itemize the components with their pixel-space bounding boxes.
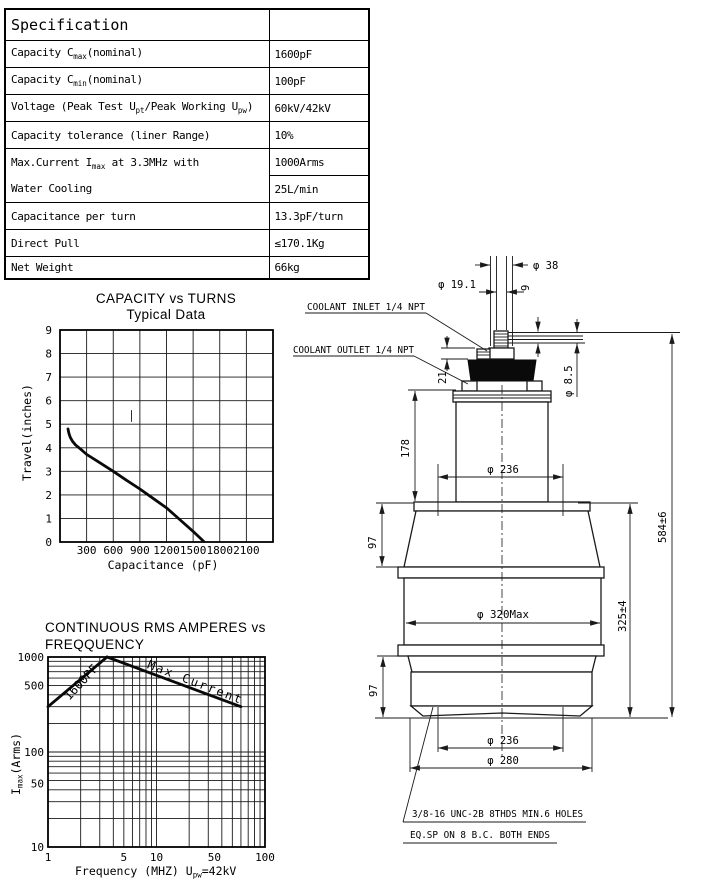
capacity-vs-turns-chart: 30060090012001500180021000123456789CAPAC… [20, 291, 273, 572]
svg-text:8: 8 [45, 348, 52, 361]
svg-text:900: 900 [130, 544, 150, 557]
svg-text:FREQQUENCY: FREQQUENCY [45, 637, 144, 652]
svg-text:Imax(Arms): Imax(Arms) [9, 733, 25, 795]
dim-178: 178 [400, 439, 412, 458]
svg-text:Capacitance (pF): Capacitance (pF) [108, 558, 219, 572]
graphics-layer: 30060090012001500180021000123456789CAPAC… [0, 0, 714, 885]
dim-dia38: φ 38 [533, 260, 558, 272]
svg-text:4: 4 [45, 442, 52, 455]
svg-text:1200: 1200 [153, 544, 180, 557]
dim-9: 9 [520, 285, 532, 291]
svg-text:9: 9 [45, 324, 52, 337]
dim-325: 325±4 [617, 600, 629, 632]
svg-text:Travel(inches): Travel(inches) [20, 384, 34, 481]
dim-dia236-bottom: φ 236 [487, 735, 519, 747]
svg-text:10: 10 [31, 841, 44, 854]
svg-text:1800: 1800 [207, 544, 234, 557]
svg-text:1500: 1500 [180, 544, 207, 557]
svg-text:3: 3 [45, 465, 52, 478]
svg-text:100: 100 [255, 851, 275, 864]
svg-text:2100: 2100 [233, 544, 260, 557]
svg-text:Typical Data: Typical Data [126, 307, 205, 322]
svg-text:Max Current: Max Current [146, 658, 246, 707]
svg-text:300: 300 [77, 544, 97, 557]
svg-text:6: 6 [45, 395, 52, 408]
svg-text:50: 50 [208, 851, 221, 864]
svg-text:0: 0 [45, 536, 52, 549]
datasheet-page: Specification Capacity Cmax(nominal) 160… [0, 0, 714, 885]
dim-21: 21 [437, 371, 449, 384]
coolant-inlet-label: COOLANT INLET 1/4 NPT [307, 302, 425, 313]
svg-text:500: 500 [24, 680, 44, 693]
svg-text:5: 5 [121, 851, 128, 864]
dim-dia236-top: φ 236 [487, 464, 519, 476]
rms-amperes-vs-frequency-chart: 15105010010005001005010CONTINUOUS RMS AM… [9, 620, 275, 880]
dim-dia280: φ 280 [487, 755, 519, 767]
mounting-note-line1: 3/8-16 UNC-2B 8THDS MIN.6 HOLES [412, 809, 583, 820]
dim-584: 584±6 [657, 511, 669, 543]
svg-text:50: 50 [31, 778, 44, 791]
svg-text:Frequency (MHZ) Upw=42kV: Frequency (MHZ) Upw=42kV [75, 864, 236, 880]
capacitor-technical-drawing: COOLANT INLET 1/4 NPT COOLANT OUTLET 1/4… [293, 256, 680, 843]
svg-text:1000: 1000 [18, 651, 45, 664]
dim-dia8-5: φ 8.5 [563, 365, 575, 397]
svg-text:7: 7 [45, 371, 52, 384]
svg-text:5: 5 [45, 418, 52, 431]
svg-text:CAPACITY vs TURNS: CAPACITY vs TURNS [96, 291, 236, 306]
svg-text:10: 10 [150, 851, 163, 864]
svg-text:600: 600 [103, 544, 123, 557]
svg-text:1: 1 [45, 851, 52, 864]
svg-text:1: 1 [45, 512, 52, 525]
mounting-note-line2: EQ.SP ON 8 B.C. BOTH ENDS [410, 830, 550, 841]
dim-dia19-1: φ 19.1 [438, 279, 476, 291]
svg-text:2: 2 [45, 489, 52, 502]
coolant-outlet-label: COOLANT OUTLET 1/4 NPT [293, 345, 414, 356]
svg-text:100: 100 [24, 746, 44, 759]
dim-dia320: φ 320Max [477, 609, 529, 621]
dim-97-top: 97 [367, 536, 379, 549]
dim-97-bottom: 97 [368, 684, 380, 697]
svg-text:CONTINUOUS RMS AMPERES vs: CONTINUOUS RMS AMPERES vs [45, 620, 266, 635]
